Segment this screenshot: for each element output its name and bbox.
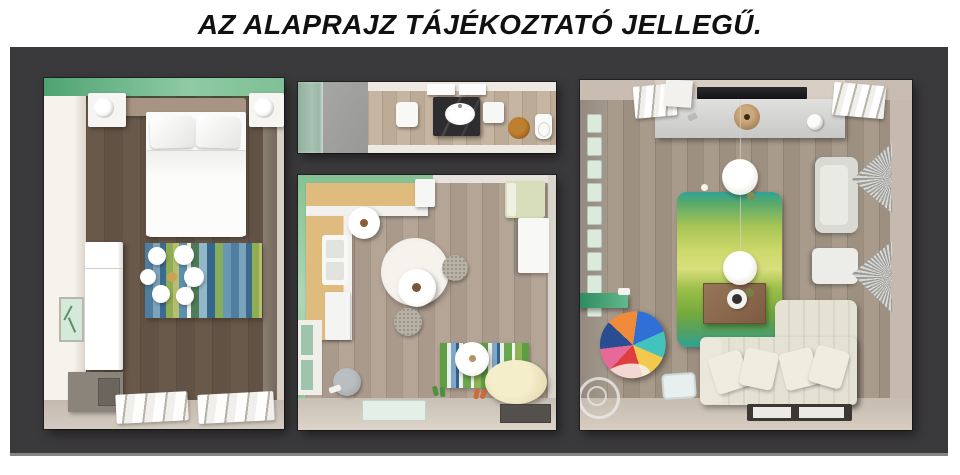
bedroom-right-wardrobe-wall — [263, 96, 277, 400]
storage-cube — [664, 80, 693, 108]
bed-pillow-right — [195, 115, 240, 149]
floorplan-image: AZ ALAPRAJZ TÁJÉKOZTATÓ JELLEGŰ. — [0, 0, 960, 475]
wall-shelf-green — [580, 293, 628, 308]
shelf-bracket — [618, 288, 630, 295]
slipper — [439, 387, 445, 397]
kitchen-right-wall — [548, 175, 556, 430]
grey-chair — [333, 368, 361, 396]
door-pane — [587, 183, 602, 202]
pendant-lamp — [723, 251, 757, 285]
door-mat-mint — [362, 400, 426, 421]
dining-chair — [394, 308, 422, 336]
kitchen-sink-unit — [322, 235, 348, 285]
room-kitchen-dining — [298, 175, 556, 430]
table-lamp-left — [94, 98, 114, 118]
towel-shelf — [459, 84, 486, 95]
armchair — [815, 157, 858, 233]
bed-duvet — [146, 150, 246, 237]
bathroom-round-rug — [508, 117, 530, 139]
pendant-bulb — [701, 184, 708, 191]
picture-frames — [747, 404, 852, 421]
ceiling-chandelier — [140, 245, 204, 309]
fridge — [415, 179, 435, 207]
tray-table — [661, 372, 697, 400]
wardrobe — [85, 242, 123, 370]
door-pane — [587, 229, 602, 248]
pouf — [485, 360, 547, 404]
door-pane — [587, 206, 602, 225]
door-pane — [587, 160, 602, 179]
room-bedroom — [44, 78, 284, 429]
daybed — [505, 181, 545, 218]
radiator — [197, 391, 274, 424]
chandelier-hub — [167, 272, 177, 282]
floor-lamp — [455, 342, 489, 376]
radiator — [832, 82, 887, 119]
shower-glass — [298, 82, 323, 153]
kitchen-accent-wall — [298, 175, 433, 183]
room-living — [580, 80, 912, 430]
white-cabinet — [518, 218, 549, 273]
radiator — [115, 391, 188, 424]
chandelier-bulb — [174, 245, 194, 265]
door-pane — [587, 114, 602, 133]
window — [298, 320, 322, 395]
decor-bowl — [727, 289, 747, 309]
bedroom-left-wall — [44, 96, 86, 400]
door-pane — [587, 252, 602, 271]
dining-chair — [442, 255, 468, 281]
shower-tray — [323, 82, 368, 153]
chandelier-bulb — [176, 287, 194, 305]
faucet — [458, 104, 462, 108]
door-pane — [587, 275, 602, 294]
bed-pillow-left — [149, 115, 194, 149]
large-round-table — [398, 269, 436, 307]
chandelier-bulb — [152, 285, 170, 303]
living-right-wall — [890, 100, 912, 410]
bedroom-accent-wall — [44, 78, 284, 96]
small-round-table — [348, 207, 380, 239]
ottoman — [812, 248, 858, 284]
chandelier-bulb — [140, 269, 156, 285]
door-mat-dark — [500, 404, 551, 423]
glass-side-table — [580, 377, 620, 419]
leaf-art-stroke — [68, 317, 76, 332]
room-bathroom — [298, 82, 556, 153]
picture-frame — [59, 297, 84, 342]
chandelier-bulb — [148, 247, 166, 265]
pendant-lamp — [722, 159, 758, 195]
pendant-bulb — [747, 192, 755, 200]
kitchen-appliance — [325, 292, 350, 340]
disclaimer-title: AZ ALAPRAJZ TÁJÉKOZTATÓ JELLEGŰ. — [0, 2, 960, 47]
living-left-wall — [580, 100, 607, 410]
door-pane — [587, 137, 602, 156]
chandelier-bulb — [184, 267, 204, 287]
towel-shelf — [427, 84, 455, 95]
bench — [68, 372, 123, 412]
wood-drum-decor — [734, 104, 760, 130]
bedroom-right-wall — [277, 96, 284, 400]
vase — [807, 114, 823, 130]
tv — [697, 87, 807, 99]
toilet — [535, 114, 552, 139]
bathroom-cabinet — [483, 102, 504, 123]
floorplan-panel — [10, 47, 948, 456]
table-lamp-right — [254, 98, 274, 118]
washing-machine — [396, 102, 418, 127]
